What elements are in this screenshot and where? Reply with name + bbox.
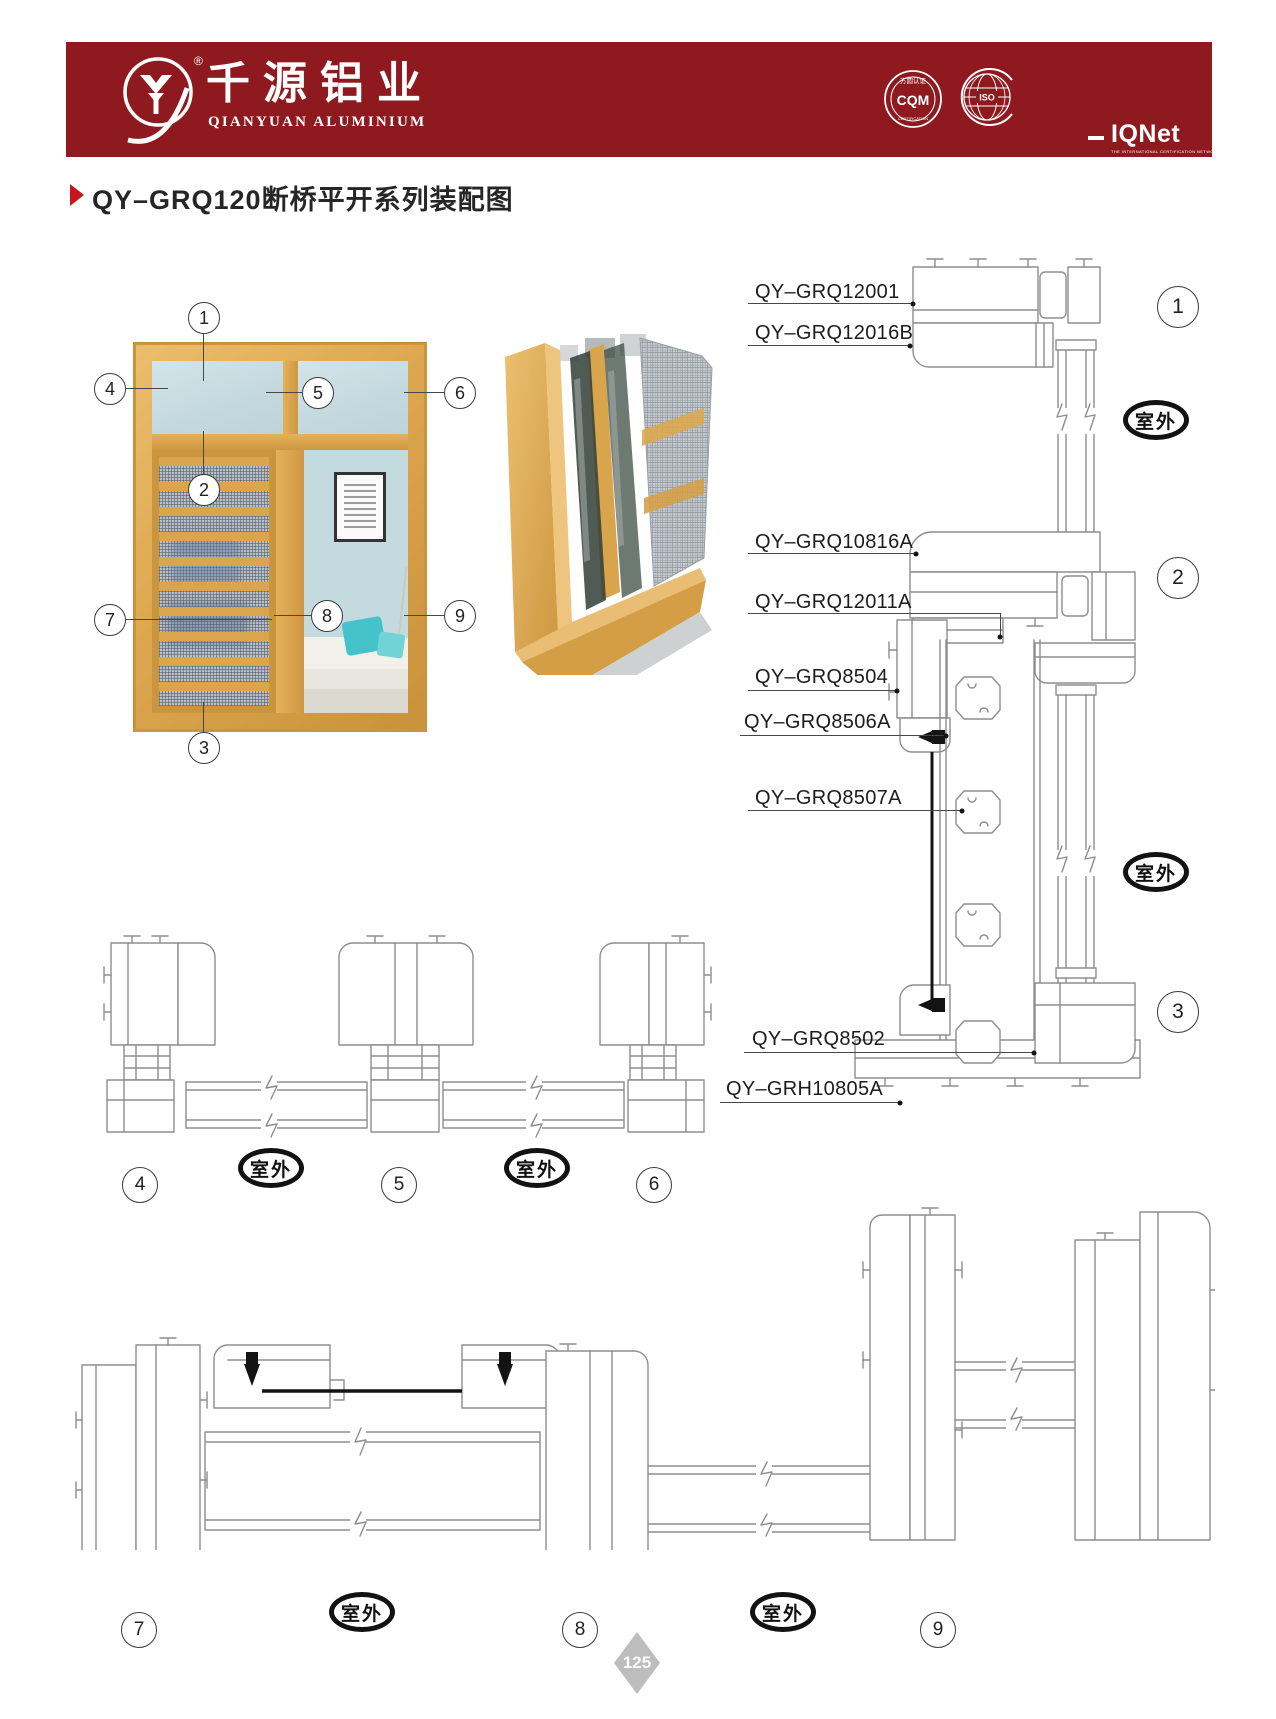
part-label: QY–GRQ8507A xyxy=(755,787,902,810)
transom-glass-left xyxy=(152,361,283,434)
callout-1: 1 xyxy=(188,302,220,334)
cqm-badge-icon: 方圆认证 CQM CERTIFICATION xyxy=(882,68,944,130)
transom-mullion xyxy=(283,361,298,434)
part-leader xyxy=(744,1052,1034,1053)
outdoor-badge: 室外 xyxy=(1123,852,1189,892)
glass-panel-interior xyxy=(304,450,408,713)
callout-line-1 xyxy=(203,334,204,381)
catalog-page: ® 千源铝业 QIANYUAN ALUMINIUM 方圆认证 CQM CERTI… xyxy=(0,0,1276,1719)
callout-3: 3 xyxy=(188,732,220,764)
callout-5: 5 xyxy=(302,377,334,409)
callout-line-8 xyxy=(274,615,311,616)
callout-line-6 xyxy=(404,392,444,393)
part-label: QY–GRH10805A xyxy=(726,1078,883,1101)
leader-dot xyxy=(908,344,913,349)
page-number-badge: 125 xyxy=(614,1632,660,1694)
part-leader xyxy=(740,735,946,736)
interior-poster xyxy=(334,472,386,542)
iqnet-dash-left xyxy=(1088,136,1104,140)
header-bar: ® 千源铝业 QIANYUAN ALUMINIUM 方圆认证 CQM CERTI… xyxy=(66,42,1212,157)
part-label: QY–GRQ8506A xyxy=(744,711,891,734)
horizontal-section-top-drawing xyxy=(100,933,720,1140)
page-title: QY–GRQ120断桥平开系列装配图 xyxy=(92,178,514,217)
section-marker-6: 6 xyxy=(636,1167,672,1203)
callout-line-5 xyxy=(266,392,302,393)
iqnet-badge: IQNet THE INTERNATIONAL CERTIFICATION NE… xyxy=(1088,122,1243,154)
leader-dot xyxy=(914,552,919,557)
page-number: 125 xyxy=(623,1653,651,1673)
leader-dot xyxy=(1032,1051,1037,1056)
outdoor-badge: 室外 xyxy=(329,1592,395,1632)
callout-2: 2 xyxy=(188,474,220,506)
part-label: QY–GRQ10816A xyxy=(755,531,913,554)
callout-line-2 xyxy=(203,431,204,474)
interior-floor xyxy=(304,687,408,713)
window-illustration xyxy=(133,342,427,732)
part-leader xyxy=(748,690,897,691)
transom-rail xyxy=(152,434,408,450)
part-label: QY–GRQ8504 xyxy=(755,666,888,689)
iqnet-label: IQNet xyxy=(1111,122,1220,147)
part-leader xyxy=(748,345,910,346)
part-label: QY–GRQ12011A xyxy=(755,591,912,614)
iqnet-subtitle: THE INTERNATIONAL CERTIFICATION NETWORK xyxy=(1111,149,1220,154)
outdoor-badge: 室外 xyxy=(238,1148,304,1188)
svg-text:CQM: CQM xyxy=(897,92,930,108)
leader-dot xyxy=(898,1101,903,1106)
section-marker-2: 2 xyxy=(1157,557,1199,599)
part-leader xyxy=(748,303,913,304)
callout-line-3 xyxy=(203,702,204,732)
interior-sofa-seat xyxy=(304,669,408,689)
section-marker-8: 8 xyxy=(562,1612,598,1648)
horizontal-section-bottom-drawing xyxy=(75,1205,1215,1550)
registered-mark: ® xyxy=(194,54,203,68)
callout-4: 4 xyxy=(94,373,126,405)
interior-pillow-small xyxy=(376,631,405,658)
leader-dot xyxy=(895,689,900,694)
svg-text:方圆认证: 方圆认证 xyxy=(900,76,927,85)
section-marker-4: 4 xyxy=(122,1167,158,1203)
poster-text-lines xyxy=(344,484,376,530)
section-marker-9: 9 xyxy=(920,1612,956,1648)
section-marker-3: 3 xyxy=(1157,991,1199,1033)
iqnet-dash-right xyxy=(1227,136,1243,140)
section-marker-5: 5 xyxy=(381,1167,417,1203)
section-marker-1: 1 xyxy=(1157,286,1199,328)
part-label: QY–GRQ12001 xyxy=(755,281,900,304)
outdoor-badge: 室外 xyxy=(504,1148,570,1188)
brand-name-english: QIANYUAN ALUMINIUM xyxy=(208,114,426,131)
callout-8: 8 xyxy=(311,600,343,632)
outdoor-badge: 室外 xyxy=(1123,400,1189,440)
brand-name-chinese: 千源铝业 xyxy=(206,62,434,106)
leader-dot xyxy=(944,734,949,739)
svg-text:CERTIFICATION: CERTIFICATION xyxy=(898,116,928,121)
corner-section-render xyxy=(455,325,725,675)
callout-line-7 xyxy=(126,619,272,620)
main-mullion xyxy=(276,450,304,713)
title-marker-icon xyxy=(70,184,84,206)
leader-dot xyxy=(998,635,1003,640)
callout-line-4 xyxy=(126,388,168,389)
part-leader xyxy=(748,810,962,811)
svg-text:ISO: ISO xyxy=(979,93,995,103)
part-label: QY–GRQ12016B xyxy=(755,322,913,345)
outdoor-badge: 室外 xyxy=(750,1592,816,1632)
part-leader xyxy=(720,1102,900,1103)
part-leader xyxy=(748,553,916,554)
leader-dot xyxy=(911,302,916,307)
part-label: QY–GRQ8502 xyxy=(752,1028,885,1051)
section-marker-7: 7 xyxy=(121,1612,157,1648)
callout-7: 7 xyxy=(94,604,126,636)
leader-dot xyxy=(960,809,965,814)
part-leader xyxy=(1000,613,1001,637)
part-leader xyxy=(748,613,1000,614)
callout-line-9 xyxy=(404,615,444,616)
iso-globe-badge-icon: ISO xyxy=(957,66,1019,128)
